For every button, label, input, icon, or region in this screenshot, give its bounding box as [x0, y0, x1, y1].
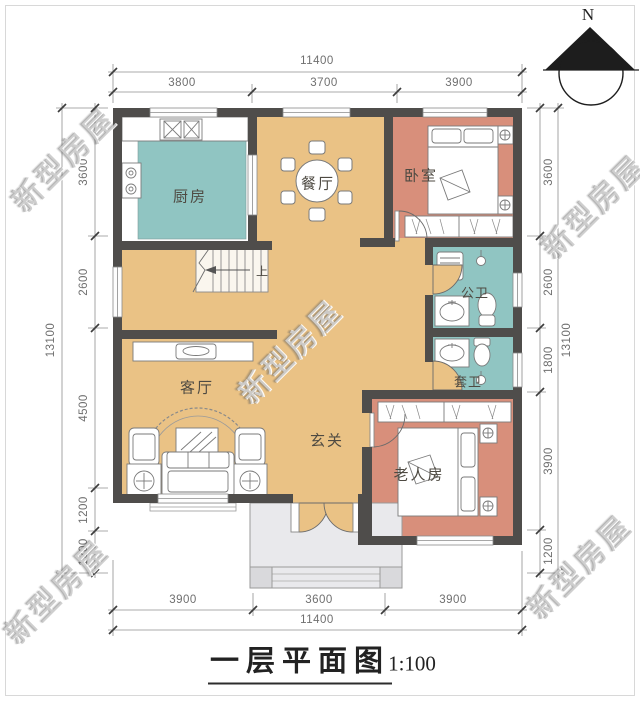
nightstand	[480, 497, 497, 516]
drawing-scale: 1:100	[388, 652, 436, 677]
porch	[250, 503, 402, 588]
elder-door-leaf	[370, 413, 374, 447]
dining-chair	[338, 158, 352, 171]
dining-chair	[338, 191, 352, 204]
room-label-dining: 餐厅	[301, 173, 335, 194]
stair-up-label: 上	[256, 263, 268, 280]
dim-left-seg-2: 2600	[78, 268, 90, 296]
floorplan-page: N 厨房 餐厅 卧室 公卫 套卫 客厅 玄关 老人房 上 11400 3800 …	[0, 0, 640, 701]
dim-left-seg-1: 3600	[78, 158, 90, 186]
dining-chair	[281, 158, 295, 171]
nightstand	[480, 424, 497, 443]
toilet-icon	[474, 344, 490, 366]
dim-top-seg-1: 3800	[168, 77, 196, 89]
dim-bottom-seg-1: 3900	[169, 594, 197, 606]
dim-left-overall: 13100	[45, 323, 57, 357]
bay-window-sill	[150, 503, 236, 511]
entry-door-leaf	[291, 503, 299, 532]
bedroom-door-leaf	[395, 211, 399, 241]
dim-right-seg-2: 2600	[543, 268, 555, 296]
room-label-public-bath: 公卫	[461, 283, 489, 302]
porch-step	[250, 567, 402, 588]
dim-right-seg-3: 1800	[543, 346, 555, 374]
dim-bottom-overall: 11400	[300, 614, 334, 626]
dim-right-seg-5: 1200	[543, 537, 555, 565]
dim-left-seg-4: 1200	[78, 496, 90, 524]
room-label-living: 客厅	[180, 377, 214, 398]
dining-chair	[281, 191, 295, 204]
stove-icon	[122, 163, 141, 198]
drawing-title: 一层平面图	[208, 638, 392, 685]
dim-left-seg-5: 1200	[78, 538, 90, 566]
dim-right-overall: 13100	[561, 323, 573, 357]
room-label-ensuite-bath: 套卫	[454, 372, 482, 391]
kitchen-counter	[122, 117, 248, 141]
dim-right-seg-4: 3900	[543, 447, 555, 475]
north-arrow-icon	[543, 27, 639, 105]
dim-right-seg-1: 3600	[543, 158, 555, 186]
dining-chair	[309, 208, 325, 221]
north-label: N	[582, 5, 594, 25]
dim-top-seg-3: 3900	[445, 77, 473, 89]
elder-wardrobe	[378, 402, 511, 422]
dim-bottom-seg-3: 3900	[439, 594, 467, 606]
porch-column-base-right	[380, 567, 402, 588]
porch-column-base-left	[250, 567, 272, 588]
dim-top-overall: 11400	[300, 55, 334, 67]
room-label-bedroom: 卧室	[404, 165, 438, 186]
dim-left-seg-3: 4500	[78, 394, 90, 422]
dim-top-seg-2: 3700	[310, 77, 338, 89]
room-label-kitchen: 厨房	[173, 186, 207, 207]
room-label-foyer: 玄关	[310, 430, 344, 451]
room-label-elder-room: 老人房	[393, 464, 444, 485]
dim-bottom-seg-2: 3600	[305, 594, 333, 606]
dining-chair	[309, 141, 325, 154]
